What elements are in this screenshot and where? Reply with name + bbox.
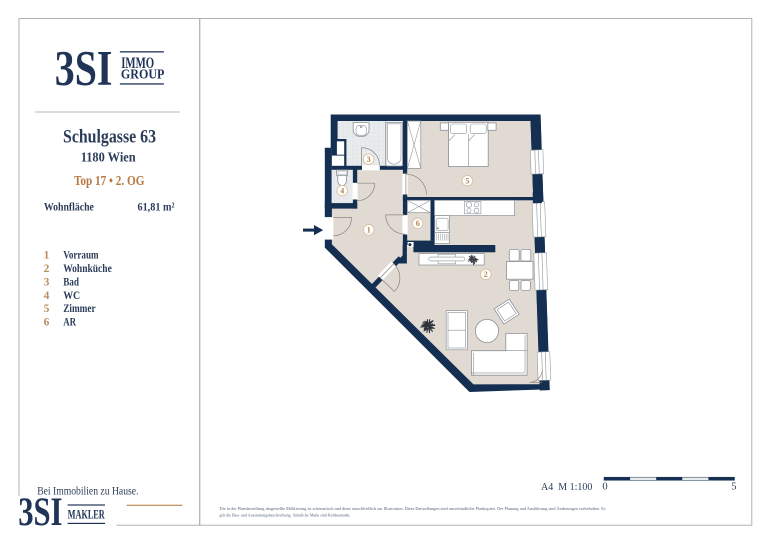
svg-text:A4 M 1:100: A4 M 1:100 [541,482,592,493]
svg-text:6: 6 [416,219,420,228]
svg-text:Vorraum: Vorraum [63,250,99,262]
svg-text:5: 5 [44,303,50,315]
svg-text:2: 2 [484,270,488,279]
svg-text:gilt die Bau- und Ausstattungs: gilt die Bau- und Ausstattungsbeschreibu… [220,512,351,517]
svg-text:3: 3 [367,155,371,164]
svg-text:3SI: 3SI [18,489,62,534]
svg-text:3: 3 [44,276,50,288]
svg-text:61,81 m²: 61,81 m² [138,202,175,214]
svg-text:2: 2 [44,263,50,275]
svg-text:1180 Wien: 1180 Wien [81,151,136,166]
svg-text:Wohnfläche: Wohnfläche [44,202,94,214]
svg-text:Bad: Bad [63,276,79,288]
svg-text:1: 1 [44,250,50,262]
svg-text:GROUP: GROUP [121,67,164,82]
svg-text:Wohnküche: Wohnküche [63,263,112,275]
svg-text:4: 4 [340,187,344,196]
svg-text:6: 6 [44,317,50,329]
svg-text:Top 17 • 2. OG: Top 17 • 2. OG [74,174,145,189]
svg-text:5: 5 [731,481,736,492]
svg-text:Die in der Plandarstellung dar: Die in der Plandarstellung dargestellte … [220,506,606,511]
svg-text:AR: AR [63,317,76,329]
svg-text:4: 4 [44,290,50,302]
svg-text:Zimmer: Zimmer [63,303,95,315]
svg-text:3SI: 3SI [55,40,113,96]
svg-text:5: 5 [465,177,469,186]
svg-text:0: 0 [602,481,607,492]
svg-text:Schulgasse 63: Schulgasse 63 [63,127,156,148]
svg-text:WC: WC [63,290,80,302]
svg-text:MAKLER: MAKLER [68,506,105,521]
svg-text:1: 1 [367,226,371,235]
